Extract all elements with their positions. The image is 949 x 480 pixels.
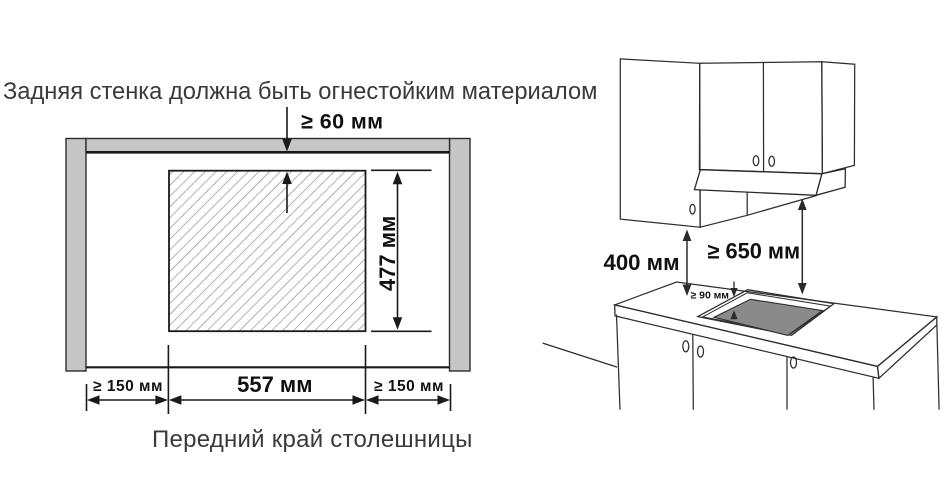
svg-text:≥ 150 мм: ≥ 150 мм bbox=[93, 378, 163, 395]
svg-text:≥ 60 мм: ≥ 60 мм bbox=[301, 110, 383, 134]
svg-text:≥ 150 мм: ≥ 150 мм bbox=[374, 378, 444, 395]
svg-text:557 мм: 557 мм bbox=[237, 372, 312, 397]
svg-text:Передний край столешницы: Передний край столешницы bbox=[152, 426, 473, 453]
svg-text:Задняя стенка должна быть огне: Задняя стенка должна быть огнестойким ма… bbox=[3, 79, 597, 105]
svg-text:477 мм: 477 мм bbox=[375, 216, 400, 291]
svg-text:400 мм: 400 мм bbox=[603, 250, 679, 275]
svg-text:≥ 90 мм: ≥ 90 мм bbox=[691, 291, 729, 302]
svg-text:≥ 650 мм: ≥ 650 мм bbox=[707, 239, 800, 264]
